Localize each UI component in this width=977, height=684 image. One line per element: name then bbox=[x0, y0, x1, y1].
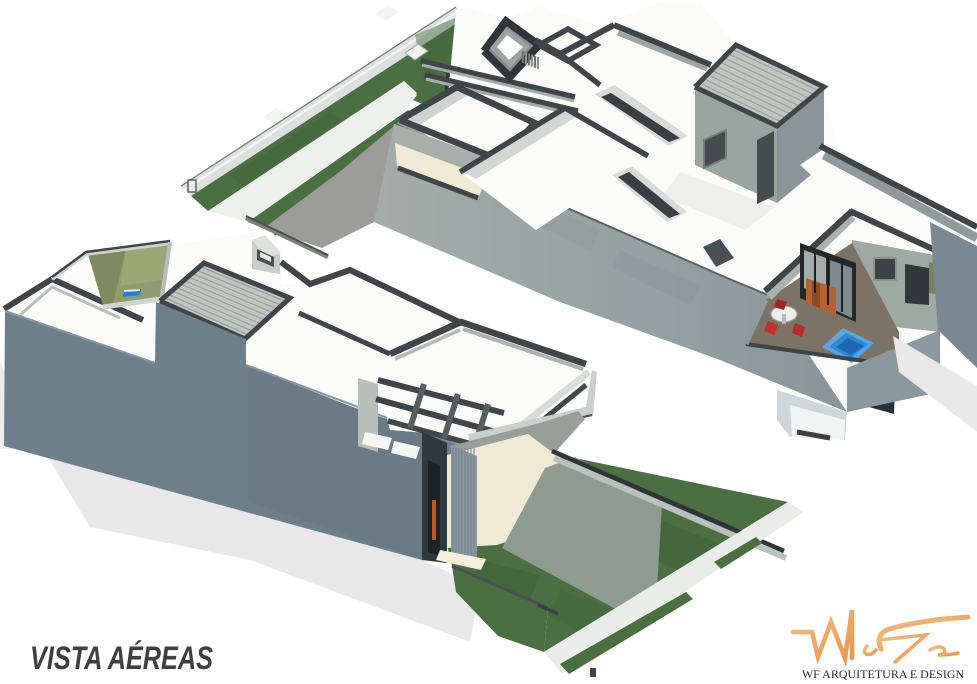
svg-text:VISTA AÉREAS: VISTA AÉREAS bbox=[30, 639, 213, 677]
svg-text:WF ARQUITETURA E DESIGN: WF ARQUITETURA E DESIGN bbox=[802, 667, 965, 681]
